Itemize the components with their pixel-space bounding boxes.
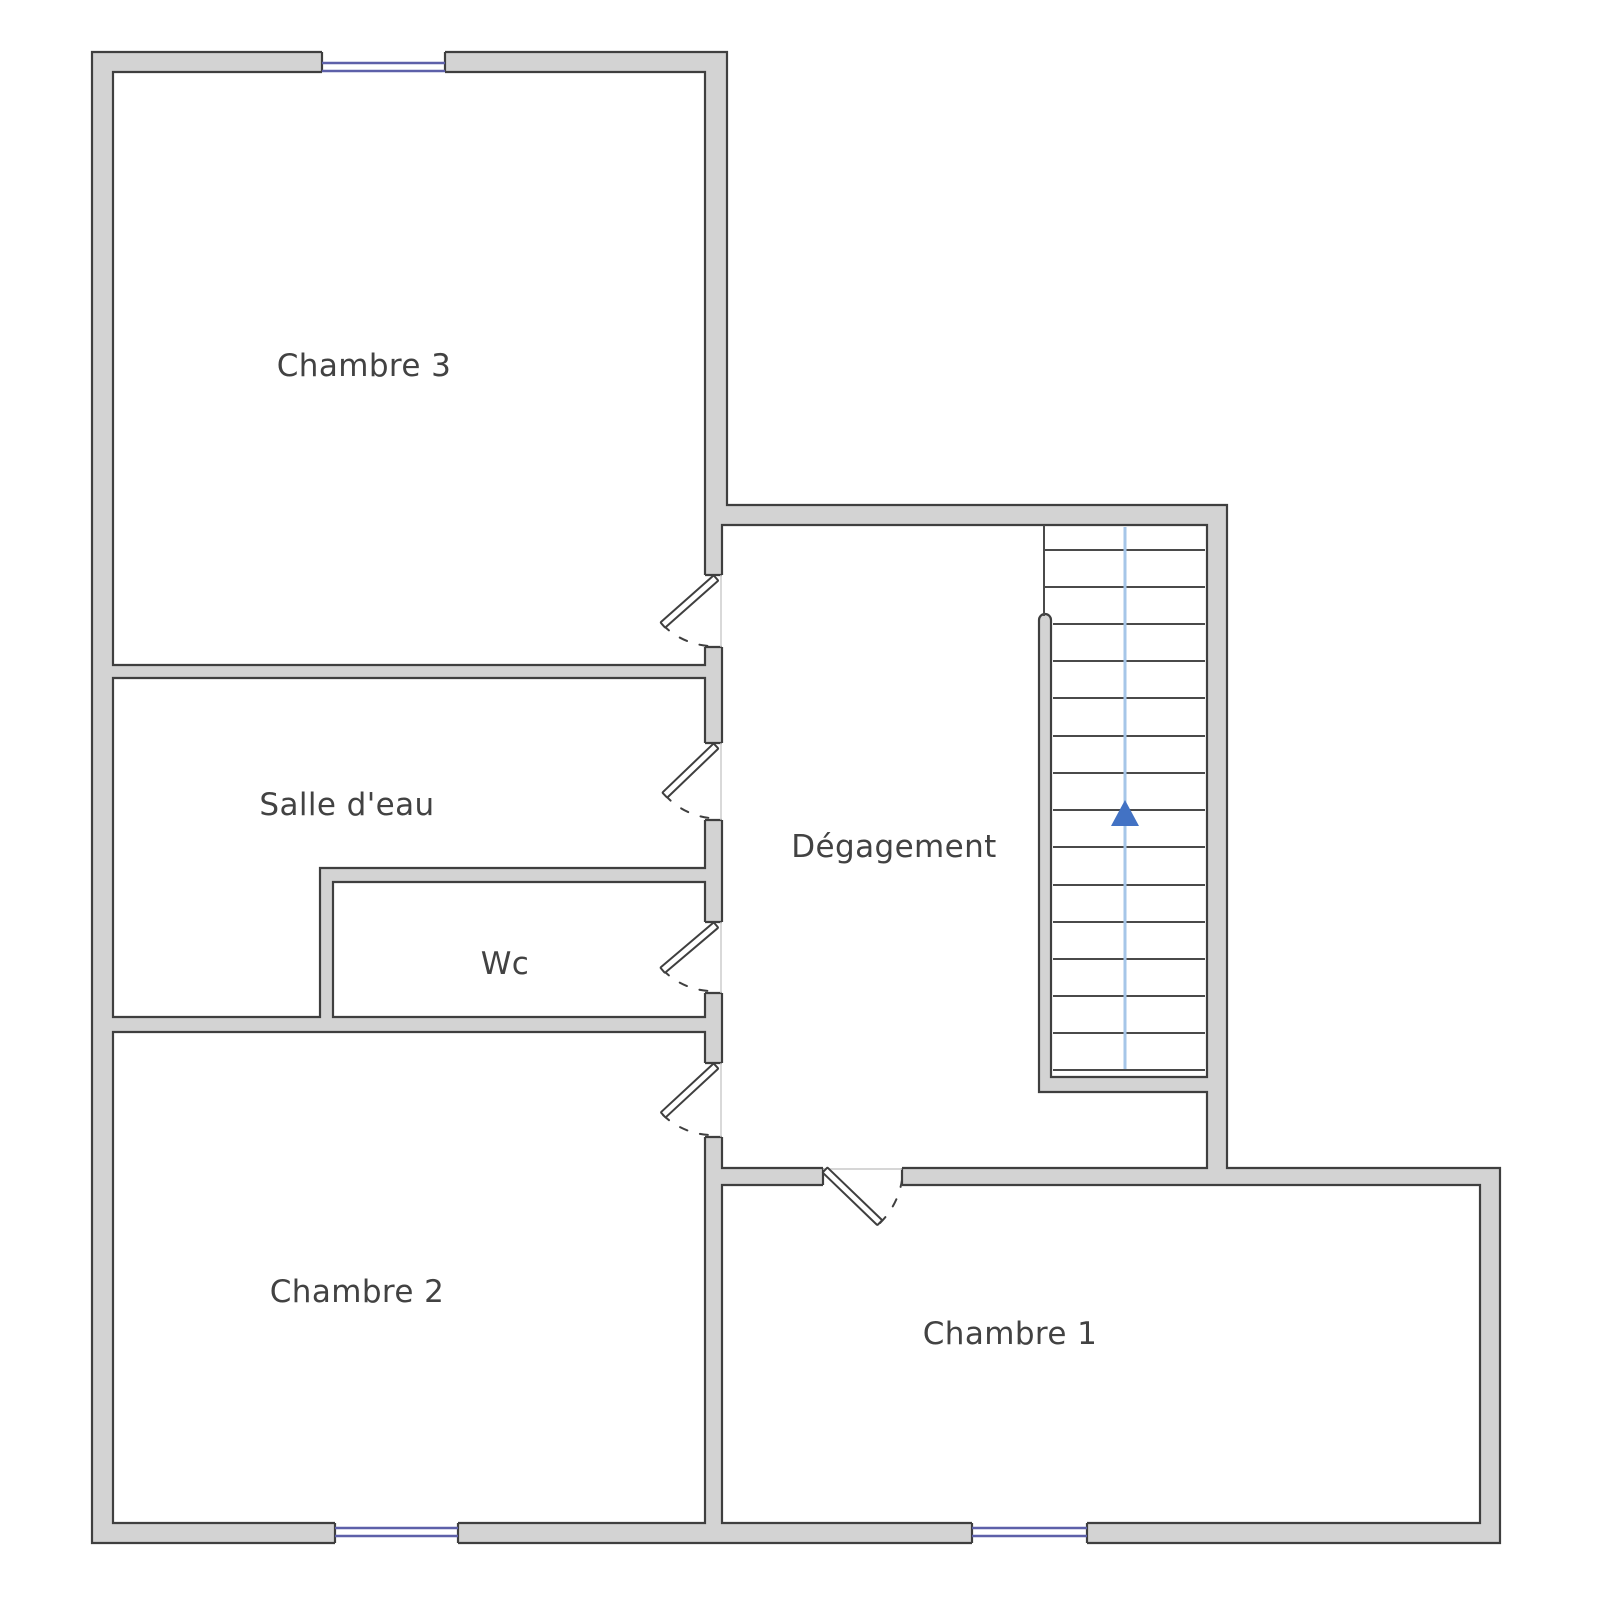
room-label-salle-d-eau: Salle d'eau (259, 787, 434, 823)
stairs-layer (1044, 525, 1205, 1070)
room-label-chambre-3: Chambre 3 (277, 348, 451, 384)
stair-up-arrow-icon (1111, 800, 1139, 826)
window-gap (972, 1520, 1087, 1545)
room-label-chambre-2: Chambre 2 (270, 1274, 444, 1310)
room-label-chambre-1: Chambre 1 (923, 1316, 1097, 1352)
room-label-degagement: Dégagement (791, 829, 996, 865)
floor-plan-page: Chambre 3 Salle d'eau Wc Dégagement Cham… (0, 0, 1600, 1600)
window-gap (335, 1520, 458, 1545)
floor-plan-svg (0, 0, 1600, 1600)
room-label-wc: Wc (481, 946, 530, 982)
